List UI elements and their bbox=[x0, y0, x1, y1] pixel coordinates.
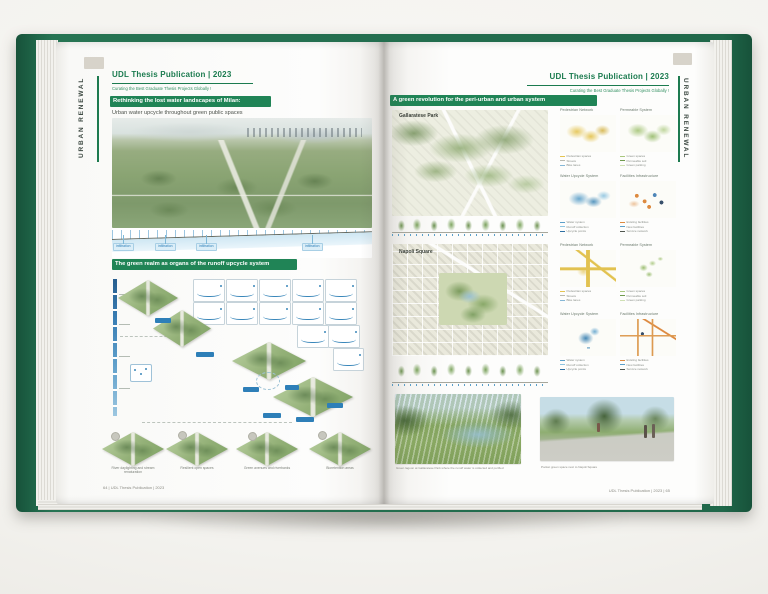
iso-park-tile-art bbox=[273, 377, 353, 417]
section-detail-card bbox=[325, 302, 357, 325]
legend-swatch bbox=[560, 360, 565, 361]
legend-swatch bbox=[620, 369, 625, 370]
legend-swatch bbox=[620, 231, 625, 232]
mini-map-facilities bbox=[620, 181, 676, 218]
legend-swatch bbox=[620, 300, 625, 301]
chapter-tab-right bbox=[673, 53, 692, 65]
legend-label: Upcycle points bbox=[567, 367, 587, 371]
section-detail-card bbox=[292, 302, 324, 325]
render-caption: Green lagoon at Gallaratese Park where t… bbox=[396, 466, 504, 470]
section-detail-card bbox=[259, 279, 291, 302]
legend-swatch bbox=[620, 291, 625, 292]
section-sketch-icon bbox=[230, 289, 254, 297]
strategy-tile-caption: Resilient open spaces bbox=[169, 466, 225, 470]
strategy-tile-art bbox=[236, 432, 298, 466]
iso-park-tile-art bbox=[153, 310, 211, 347]
infiltration-label: infiltration bbox=[196, 243, 217, 251]
pedestrian-figure bbox=[652, 424, 655, 438]
upcycle-system-diagram bbox=[112, 272, 372, 428]
legend-swatch bbox=[620, 364, 625, 365]
legend-row: Service network bbox=[620, 229, 648, 233]
page-header-title: UDL Thesis Publication | 2023 bbox=[112, 70, 231, 79]
park-paths-overlay bbox=[112, 140, 372, 228]
strategy-number-badge-icon bbox=[318, 431, 327, 440]
napoli-masterplan-map bbox=[392, 244, 548, 356]
strategy-tile bbox=[166, 432, 228, 466]
strategy-tile-art bbox=[166, 432, 228, 466]
legend-swatch bbox=[560, 222, 565, 223]
section-sketch-icon bbox=[296, 289, 320, 297]
legend-label: Bike lanes bbox=[567, 298, 581, 302]
section-sketch-icon bbox=[332, 335, 356, 343]
render-photo-pocket-park bbox=[540, 397, 674, 461]
strategy-number-badge-icon bbox=[248, 432, 257, 441]
legend-swatch bbox=[560, 231, 565, 232]
legend-row: Green parking bbox=[620, 298, 646, 302]
spine-accent-line-right bbox=[678, 76, 680, 162]
legend-swatch bbox=[620, 165, 625, 166]
left-page: URBAN RENEWAL UDL Thesis Publication | 2… bbox=[56, 42, 384, 504]
mini-map-title: Facilities Infrastructure bbox=[620, 174, 658, 178]
mini-map-title: Water Upcycle System bbox=[560, 174, 598, 178]
section-tick-row bbox=[392, 384, 548, 386]
legend-row: Upcycle points bbox=[560, 229, 586, 233]
header-rule bbox=[112, 83, 253, 84]
pedestrian-figure bbox=[597, 423, 600, 432]
city-skyline bbox=[247, 128, 361, 137]
legend-swatch bbox=[620, 360, 625, 361]
strategy-tile-caption: Green avenues and riverbanks bbox=[239, 466, 295, 470]
mini-map-water bbox=[560, 319, 616, 356]
pedestrian-figure bbox=[644, 425, 647, 438]
flow-bar-tick bbox=[119, 356, 130, 357]
legend-swatch bbox=[560, 291, 565, 292]
dotted-circle-marker bbox=[256, 372, 280, 390]
strategy-tile bbox=[236, 432, 298, 466]
diagram-label-chip bbox=[327, 403, 343, 408]
section-sketch-icon bbox=[329, 312, 353, 320]
mini-map-title: Facilities Infrastructure bbox=[620, 312, 658, 316]
spine-accent-line-left bbox=[97, 76, 99, 162]
infiltration-label: infiltration bbox=[155, 243, 176, 251]
section-detail-card bbox=[292, 279, 324, 302]
strategy-number-badge-icon bbox=[178, 431, 187, 440]
render-caption: Pocket green space next to Napoli Square bbox=[541, 465, 597, 469]
section-detail-card bbox=[193, 279, 225, 302]
napoli-central-green bbox=[439, 273, 508, 325]
gallaratese-section-strip bbox=[392, 218, 548, 233]
legend-label: Green parking bbox=[627, 163, 646, 167]
flow-bar-tick bbox=[119, 388, 130, 389]
mini-map-water bbox=[560, 181, 616, 218]
render-photo-lagoon bbox=[395, 394, 521, 464]
diagram-label-chip bbox=[155, 318, 171, 323]
project-title-banner: Rethinking the lost water landscapes of … bbox=[110, 96, 271, 107]
mini-map-pedestrian bbox=[560, 115, 616, 152]
section-sketch-icon bbox=[296, 312, 320, 320]
diagram-label-chip bbox=[263, 413, 281, 418]
water-flow-gradient-bar bbox=[113, 279, 117, 416]
project-title-banner: A green revolution for the peri-urban an… bbox=[390, 95, 597, 106]
page-header-subtitle: Curating the Best Graduate Thesis Projec… bbox=[112, 86, 211, 91]
legend-label: Upcycle points bbox=[567, 229, 587, 233]
iso-park-tile bbox=[153, 310, 211, 347]
legend-label: Service network bbox=[627, 367, 648, 371]
connector-line bbox=[142, 422, 292, 423]
page-footer: UDL Thesis Publication | 2023 | 65 bbox=[534, 488, 670, 493]
upcycle-hub-icon bbox=[130, 364, 152, 382]
spine-label-left: URBAN RENEWAL bbox=[78, 78, 85, 158]
diagram-label-chip bbox=[296, 417, 314, 422]
iso-park-tile bbox=[273, 377, 353, 417]
mini-map-title: Water Upcycle System bbox=[560, 312, 598, 316]
legend-swatch bbox=[560, 226, 565, 227]
legend-row: Service network bbox=[620, 367, 648, 371]
site-map-label: Napoli Square bbox=[399, 249, 433, 255]
water-section-diagram bbox=[112, 228, 372, 258]
section-sketch-icon bbox=[329, 289, 353, 297]
section-sketch-icon bbox=[337, 358, 360, 366]
diagram-label-chip bbox=[285, 385, 299, 390]
legend-row: Bike lanes bbox=[560, 298, 580, 302]
chapter-tab-left bbox=[84, 57, 104, 69]
legend-row: Bike lanes bbox=[560, 163, 580, 167]
legend-swatch bbox=[560, 300, 565, 301]
legend-swatch bbox=[620, 156, 625, 157]
page-header-subtitle: Curating the Best Graduate Thesis Projec… bbox=[483, 88, 669, 93]
section-detail-card bbox=[259, 302, 291, 325]
section-sketch-icon bbox=[263, 312, 287, 320]
legend-swatch bbox=[560, 295, 565, 296]
project-intro-line: Urban water upcycle throughout green pub… bbox=[112, 110, 243, 116]
mini-map-permeable bbox=[620, 115, 676, 152]
legend-swatch bbox=[620, 160, 625, 161]
section-tick-row bbox=[392, 234, 548, 236]
legend-row: Green parking bbox=[620, 163, 646, 167]
header-rule bbox=[527, 85, 669, 86]
diagram-label-chip bbox=[243, 387, 259, 392]
strategy-tile-caption: Bioretention areas bbox=[312, 466, 368, 470]
legend-swatch bbox=[620, 222, 625, 223]
page-stack-left-edge bbox=[36, 40, 58, 506]
legend-swatch bbox=[560, 156, 565, 157]
legend-swatch bbox=[560, 160, 565, 161]
mini-map-pedestrian bbox=[560, 250, 616, 287]
legend-swatch bbox=[560, 165, 565, 166]
gallaratese-masterplan-map bbox=[392, 110, 548, 216]
section-detail-card bbox=[226, 279, 258, 302]
section-detail-card bbox=[333, 348, 364, 371]
mini-map-title: Pedestrian Network bbox=[560, 108, 593, 112]
section-detail-card bbox=[325, 279, 357, 302]
legend-row: Upcycle points bbox=[560, 367, 586, 371]
page-footer: 64 | UDL Thesis Publication | 2023 bbox=[103, 485, 164, 490]
mini-map-title: Pedestrian Network bbox=[560, 243, 593, 247]
right-page: URBAN RENEWAL UDL Thesis Publication | 2… bbox=[384, 42, 714, 504]
mini-map-permeable bbox=[620, 250, 676, 287]
strategy-tile-caption: River daylighting and stream renaturatio… bbox=[105, 466, 161, 474]
legend-label: Bike lanes bbox=[567, 163, 581, 167]
spine-label-right: URBAN RENEWAL bbox=[682, 78, 689, 158]
legend-label: Service network bbox=[627, 229, 648, 233]
infiltration-label: infiltration bbox=[302, 243, 323, 251]
strategy-number-badge-icon bbox=[111, 432, 120, 441]
mini-map-title: Permeable System bbox=[620, 108, 652, 112]
system-section-banner: The green realm as organs of the runoff … bbox=[112, 259, 297, 270]
napoli-section-strip bbox=[392, 358, 548, 383]
section-detail-card bbox=[328, 325, 360, 348]
site-map-label: Gallaratese Park bbox=[399, 113, 438, 119]
page-header-title: UDL Thesis Publication | 2023 bbox=[504, 72, 669, 81]
book-mockup-photo: URBAN RENEWAL UDL Thesis Publication | 2… bbox=[0, 0, 768, 594]
legend-swatch bbox=[620, 295, 625, 296]
legend-swatch bbox=[560, 364, 565, 365]
legend-swatch bbox=[560, 369, 565, 370]
section-sketch-icon bbox=[230, 312, 254, 320]
flow-bar-tick bbox=[119, 324, 130, 325]
section-detail-card bbox=[226, 302, 258, 325]
legend-label: Green parking bbox=[627, 298, 646, 302]
mini-map-title: Permeable System bbox=[620, 243, 652, 247]
mini-map-facilities bbox=[620, 319, 676, 356]
section-sketch-icon bbox=[263, 289, 287, 297]
section-sketch-icon bbox=[197, 289, 221, 297]
aerial-render-image bbox=[112, 118, 372, 228]
diagram-label-chip bbox=[196, 352, 214, 357]
infiltration-label: infiltration bbox=[113, 243, 134, 251]
legend-swatch bbox=[620, 226, 625, 227]
